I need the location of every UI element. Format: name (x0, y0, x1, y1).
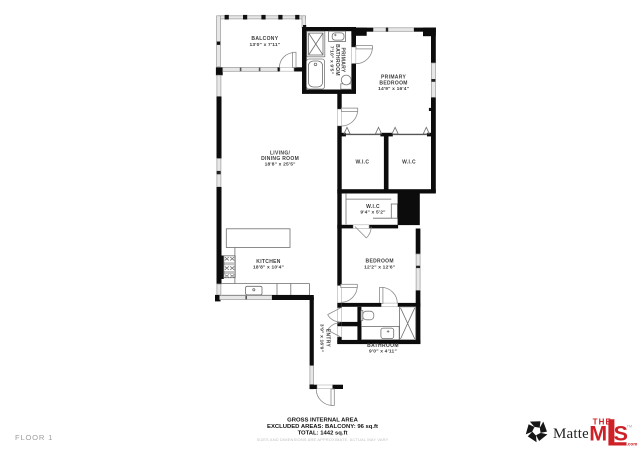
svg-text:9'0" x 4'11": 9'0" x 4'11" (369, 348, 397, 354)
svg-text:BATHROOM: BATHROOM (367, 343, 399, 349)
svg-text:W.I.C: W.I.C (366, 204, 380, 210)
svg-text:W.I.C: W.I.C (355, 160, 369, 166)
svg-text:KITCHEN: KITCHEN (256, 259, 281, 265)
svg-text:W.I.C: W.I.C (402, 160, 416, 166)
svg-text:M: M (589, 422, 607, 446)
svg-text:TOTAL: 1442 sq.ft: TOTAL: 1442 sq.ft (298, 431, 348, 437)
svg-text:13'0" x 7'11": 13'0" x 7'11" (250, 42, 281, 48)
svg-text:GROSS INTERNAL AREA: GROSS INTERNAL AREA (287, 417, 358, 423)
svg-text:PRIMARY: PRIMARY (381, 74, 406, 80)
svg-text:TM: TM (627, 425, 632, 429)
svg-text:DINING ROOM: DINING ROOM (261, 156, 299, 162)
svg-text:SIZES AND DIMENSIONS ARE APPRO: SIZES AND DIMENSIONS ARE APPROXIMATE, AC… (257, 437, 389, 442)
svg-text:BEDROOM: BEDROOM (366, 258, 394, 264)
svg-text:EXCLUDED AREAS: BALCONY: 96 sq: EXCLUDED AREAS: BALCONY: 96 sq.ft (267, 424, 378, 430)
svg-text:18'8" x 25'5": 18'8" x 25'5" (265, 162, 296, 168)
svg-text:9'4" x 5'2": 9'4" x 5'2" (360, 209, 385, 215)
svg-text:12'2" x 12'6": 12'2" x 12'6" (364, 264, 395, 270)
svg-text:18'8" x 10'4": 18'8" x 10'4" (253, 265, 284, 271)
svg-text:3'9" x 16'9": 3'9" x 16'9" (319, 324, 325, 352)
svg-text:BEDROOM: BEDROOM (379, 81, 407, 87)
svg-text:BATHROOM: BATHROOM (334, 44, 340, 76)
svg-text:7'10" x 9'5": 7'10" x 9'5" (329, 46, 335, 74)
svg-text:BALCONY: BALCONY (251, 36, 278, 42)
svg-text:.com: .com (627, 442, 638, 447)
svg-text:ENTRY: ENTRY (324, 329, 330, 348)
svg-text:14'9" x 16'4": 14'9" x 16'4" (378, 86, 409, 92)
svg-text:FLOOR 1: FLOOR 1 (15, 433, 53, 442)
